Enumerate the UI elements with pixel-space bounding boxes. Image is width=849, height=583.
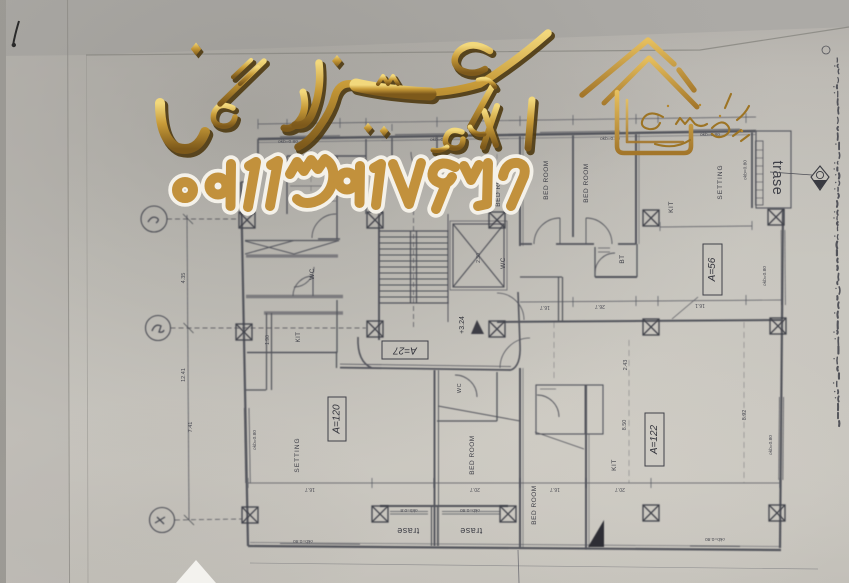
svg-text:okb=0.80: okb=0.80: [705, 536, 725, 542]
svg-text:KIT: KIT: [611, 459, 618, 471]
svg-text:A=27: A=27: [393, 344, 418, 355]
svg-text:okb=0.80: okb=0.80: [293, 538, 313, 544]
svg-text:20.7: 20.7: [615, 486, 625, 492]
svg-text:1.90: 1.90: [265, 335, 271, 345]
svg-text:16.7: 16.7: [550, 486, 560, 492]
svg-text:KIT: KIT: [296, 332, 302, 343]
svg-text:20.7: 20.7: [470, 486, 480, 492]
svg-text:BT: BT: [619, 254, 626, 263]
svg-text:A=122: A=122: [649, 424, 660, 455]
svg-text:7.41: 7.41: [188, 422, 194, 433]
svg-text:okb=0.80: okb=0.80: [278, 139, 298, 145]
svg-text:16.7: 16.7: [305, 486, 315, 492]
svg-text:WC: WC: [457, 383, 463, 393]
svg-text:okb=0.80: okb=0.80: [762, 266, 768, 286]
svg-text:trase: trase: [769, 161, 785, 196]
svg-text:SETTING: SETTING: [717, 164, 724, 199]
svg-text:okb=0.80: okb=0.80: [743, 160, 749, 180]
svg-text:A=120: A=120: [332, 404, 343, 435]
svg-text:trase: trase: [460, 526, 483, 536]
svg-text:SETTING: SETTING: [294, 437, 301, 472]
svg-text:2.30: 2.30: [476, 253, 482, 263]
svg-text:8.50: 8.50: [622, 420, 628, 431]
svg-text:okb=0.80: okb=0.80: [460, 507, 480, 513]
svg-text:26.7: 26.7: [595, 303, 605, 309]
svg-text:BED ROOM: BED ROOM: [531, 485, 538, 524]
svg-text:okb=0.80: okb=0.80: [768, 435, 774, 455]
svg-text:trase: trase: [397, 526, 420, 536]
svg-text:KIT: KIT: [668, 201, 675, 213]
svg-text:12.41: 12.41: [181, 368, 187, 382]
svg-text:WC: WC: [309, 268, 316, 280]
svg-text:okb=0.80: okb=0.80: [252, 430, 258, 450]
svg-text:okb=0.8: okb=0.8: [400, 507, 418, 513]
svg-text:A=56: A=56: [707, 257, 718, 282]
svg-text:+3.24: +3.24: [459, 316, 466, 334]
svg-text:BED ROOM: BED ROOM: [543, 160, 550, 199]
svg-text:BED ROOM: BED ROOM: [583, 163, 590, 202]
svg-text:4.35: 4.35: [181, 273, 187, 284]
svg-text:16.1: 16.1: [695, 302, 705, 308]
svg-text:16.7: 16.7: [540, 304, 550, 310]
svg-text:2.43: 2.43: [623, 360, 629, 371]
svg-text:8.92: 8.92: [742, 410, 748, 421]
svg-text:BED ROOM: BED ROOM: [469, 435, 476, 474]
svg-text:WC: WC: [500, 257, 507, 269]
